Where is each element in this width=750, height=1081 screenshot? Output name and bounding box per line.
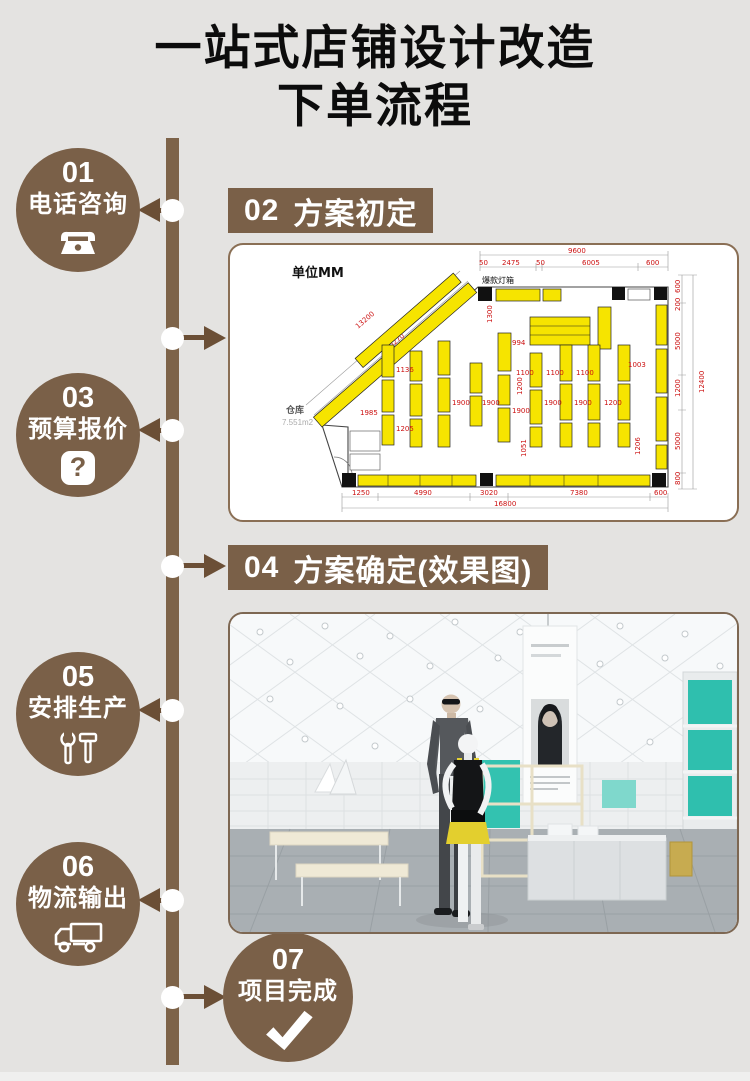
section-title: 方案初定 xyxy=(293,189,417,233)
step-label: 预算报价 xyxy=(28,417,128,443)
plan-warehouse-area: 7.551m2 xyxy=(282,418,314,427)
step-number: 03 xyxy=(62,383,94,415)
dim-label: 1985 xyxy=(360,409,378,417)
arrow-left-icon xyxy=(138,888,160,912)
floor-plan-card: 单位MM 9600 50 2475 50 6005 600 600 xyxy=(228,243,739,522)
truck-icon xyxy=(51,918,105,956)
arrow-right-icon xyxy=(204,326,226,350)
dim-label: 1200 xyxy=(516,377,524,395)
dim-label: 5000 xyxy=(674,432,682,450)
step-circle-03: 03 预算报价 ? xyxy=(16,373,140,497)
dim-label: 1136 xyxy=(396,366,414,374)
dim-label: 9600 xyxy=(568,247,586,255)
step-label: 安排生产 xyxy=(28,696,128,722)
plan-lightbox-label: 爆款灯箱 xyxy=(482,275,514,285)
question-icon: ? xyxy=(61,449,95,487)
section-number: 04 xyxy=(244,551,279,585)
dim-label: 1900 xyxy=(482,399,500,407)
page-title-line1: 一站式店铺设计改造 xyxy=(0,24,750,71)
timeline-line xyxy=(166,138,179,1065)
question-glyph: ? xyxy=(70,452,87,483)
timeline-dot xyxy=(161,555,184,578)
dim-label: 3020 xyxy=(480,489,498,497)
step-label: 电话咨询 xyxy=(28,192,128,218)
dim-label: 600 xyxy=(654,489,667,497)
section-title: 方案确定(效果图) xyxy=(293,546,532,590)
step-number: 05 xyxy=(62,662,94,694)
timeline-dot xyxy=(161,699,184,722)
dim-label: 1300 xyxy=(486,305,494,323)
dim-label: 200 xyxy=(674,298,682,311)
dim-label: 12400 xyxy=(698,371,706,393)
step-circle-07: 07 项目完成 xyxy=(223,932,353,1062)
dim-label: 50 xyxy=(479,259,488,267)
dim-label: 1200 xyxy=(674,379,682,397)
dim-label: 4990 xyxy=(414,489,432,497)
plan-unit-label: 单位MM xyxy=(292,265,344,281)
dim-label: 800 xyxy=(674,472,682,485)
step-circle-01: 01 电话咨询 xyxy=(16,148,140,272)
dim-label: 1100 xyxy=(576,369,594,377)
dim-label: 1100 xyxy=(516,369,534,377)
dim-label: 16800 xyxy=(494,500,516,508)
timeline-dot xyxy=(161,199,184,222)
dim-label: 1205 xyxy=(396,425,414,433)
step-circle-05: 05 安排生产 xyxy=(16,652,140,776)
timeline-dot xyxy=(161,327,184,350)
timeline-dot xyxy=(161,889,184,912)
step-label: 项目完成 xyxy=(238,979,338,1005)
arrow-right-icon xyxy=(204,554,226,578)
section-number: 02 xyxy=(244,194,279,228)
dim-label: 1100 xyxy=(546,369,564,377)
check-icon xyxy=(259,1011,317,1049)
section-header-02: 02 方案初定 xyxy=(228,188,433,233)
arrow-left-icon xyxy=(138,198,160,222)
dim-label: 2475 xyxy=(502,259,520,267)
dim-label: 5000 xyxy=(674,332,682,350)
dim-label: 7380 xyxy=(570,489,588,497)
dim-label: 6005 xyxy=(582,259,600,267)
showroom-photo xyxy=(230,614,737,932)
dim-label: 1900 xyxy=(544,399,562,407)
step-number: 06 xyxy=(62,852,94,884)
dim-label: 600 xyxy=(674,280,682,293)
phone-icon xyxy=(57,224,99,262)
arrow-left-icon xyxy=(138,698,160,722)
arrow-left-icon xyxy=(138,418,160,442)
section-header-04: 04 方案确定(效果图) xyxy=(228,545,548,590)
timeline-dot xyxy=(161,986,184,1009)
dim-label: 1900 xyxy=(452,399,470,407)
dim-label: 1206 xyxy=(634,437,642,455)
dim-label: 1250 xyxy=(352,489,370,497)
dim-label: 1900 xyxy=(574,399,592,407)
gold-bin xyxy=(670,842,692,876)
step-number: 01 xyxy=(62,158,94,190)
dim-label: 1051 xyxy=(520,439,528,457)
dim-label: 13200 xyxy=(354,310,376,331)
step-label: 物流输出 xyxy=(28,886,128,912)
tools-icon xyxy=(55,728,101,766)
dim-label: 1003 xyxy=(628,361,646,369)
plan-warehouse-label: 仓库 xyxy=(285,404,304,415)
dim-label: 50 xyxy=(536,259,545,267)
dim-label: 994 xyxy=(512,339,526,347)
dim-label: 1200 xyxy=(604,399,622,407)
infographic-page: 一站式店铺设计改造 下单流程 01 电话咨询 03 预算报价 xyxy=(0,0,750,1081)
page-title-line2: 下单流程 xyxy=(0,82,750,129)
step-circle-06: 06 物流输出 xyxy=(16,842,140,966)
timeline-dot xyxy=(161,419,184,442)
dim-label: 600 xyxy=(646,259,659,267)
step-number: 07 xyxy=(272,945,304,977)
showroom-photo-card xyxy=(228,612,739,934)
floor-plan-drawing: 单位MM 9600 50 2475 50 6005 600 600 xyxy=(230,245,737,520)
dim-label: 1900 xyxy=(512,407,530,415)
bottom-band xyxy=(0,1072,750,1081)
